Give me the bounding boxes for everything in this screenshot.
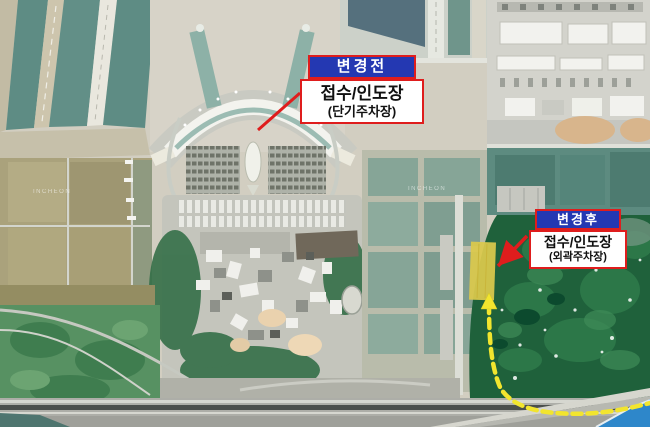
runways-top-right bbox=[340, 0, 487, 63]
callout-after: 변경후 접수/인도장 (외곽주차장) bbox=[529, 209, 627, 269]
parking-highlight bbox=[469, 242, 496, 301]
annotated-satellite-map: INCHEON INCHEON 변경전 접수/인도장 (단기주차장) 변경후 접… bbox=[0, 0, 650, 427]
callout-after-line1: 접수/인도장 bbox=[531, 234, 625, 251]
callout-before-line1: 접수/인도장 bbox=[302, 83, 422, 104]
ibc-area bbox=[149, 195, 367, 394]
callout-before-body: 접수/인도장 (단기주차장) bbox=[300, 79, 424, 124]
callout-after-body: 접수/인도장 (외곽주차장) bbox=[529, 230, 627, 269]
callout-before-line2: (단기주차장) bbox=[302, 104, 422, 119]
callout-after-line2: (외곽주차장) bbox=[531, 251, 625, 264]
cargo-area bbox=[487, 0, 650, 150]
callout-after-title: 변경후 bbox=[535, 209, 621, 230]
callout-before-title: 변경전 bbox=[308, 55, 416, 79]
callout-before: 변경전 접수/인도장 (단기주차장) bbox=[300, 55, 424, 124]
ground-label-left: INCHEON bbox=[33, 189, 71, 195]
ground-label-right: INCHEON bbox=[408, 186, 446, 192]
runways-left bbox=[0, 0, 155, 160]
